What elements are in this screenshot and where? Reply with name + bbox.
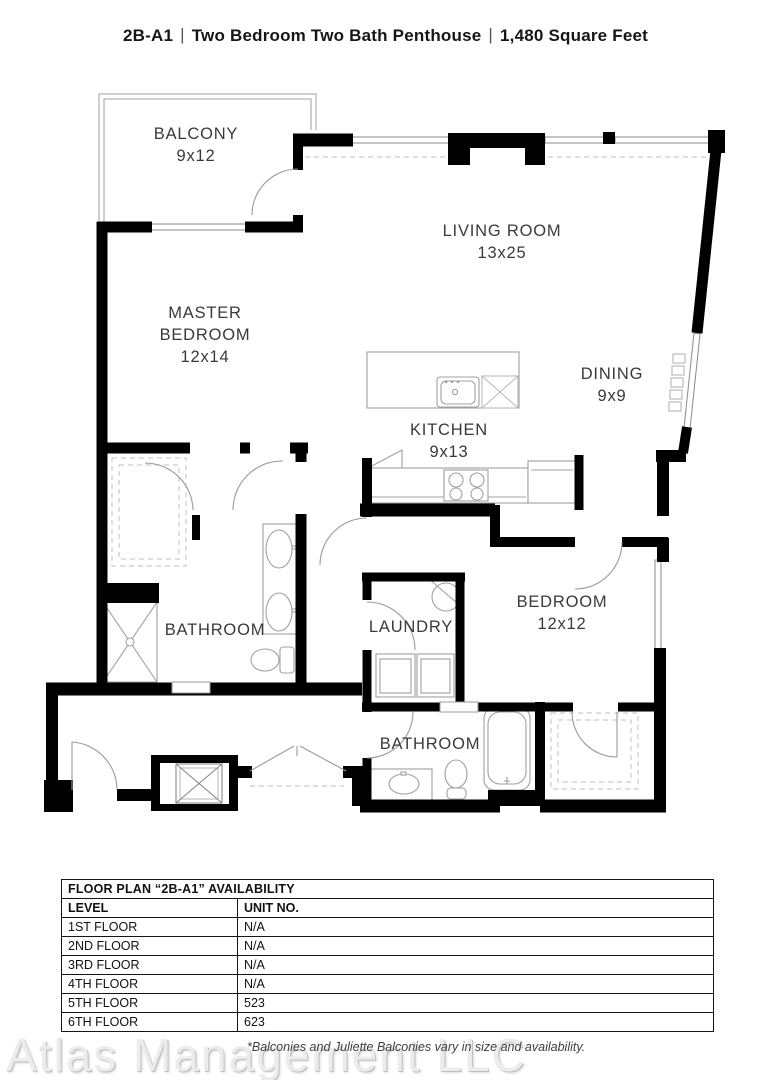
column-notch [470, 148, 525, 166]
master-bathroom-label: BATHROOM [165, 621, 266, 639]
vanity-2 [366, 769, 432, 803]
unit-cell: N/A [238, 975, 714, 994]
master-bath-door-arc [233, 461, 283, 510]
table-row: 5TH FLOOR 523 [62, 994, 714, 1013]
unit-cell: N/A [238, 937, 714, 956]
entry-corner [44, 780, 73, 812]
unit-cell: N/A [238, 918, 714, 937]
table-title-row: FLOOR PLAN “2B-A1” AVAILABILITY [62, 880, 714, 899]
balcony-disclaimer: *Balconies and Juliette Balconies vary i… [247, 1040, 585, 1054]
faucet [292, 609, 296, 612]
refrigerator [528, 461, 576, 503]
dryer [417, 654, 454, 697]
management-watermark: Atlas Management LLC [6, 1028, 527, 1080]
living-room-dims: 13x25 [478, 244, 527, 262]
master-closet-dashed [112, 458, 186, 566]
bedroom-dims: 12x12 [538, 615, 587, 633]
laundry-label: LAUNDRY [369, 618, 453, 636]
table-row: 4TH FLOOR N/A [62, 975, 714, 994]
unit-cell: 523 [238, 994, 714, 1013]
master-bedroom-dims: 12x14 [181, 348, 230, 366]
dining-label: DINING [581, 365, 644, 383]
table-row: 1ST FLOOR N/A [62, 918, 714, 937]
dining-angled-window [684, 333, 700, 429]
bath-threshold [172, 682, 210, 693]
top-wall-pier [603, 132, 615, 144]
master-window [150, 224, 247, 230]
level-cell: 2ND FLOOR [62, 937, 238, 956]
double-vanity [263, 524, 298, 634]
faucet [292, 546, 296, 549]
burner [449, 473, 463, 487]
washer [376, 654, 415, 697]
faucet-dot [451, 381, 453, 383]
bedroom-label: BEDROOM [517, 593, 608, 611]
bath2-threshold [440, 702, 478, 712]
dining-wall-unit [669, 354, 685, 411]
burner [471, 488, 483, 500]
corner-cabinet [368, 450, 402, 468]
kitchen-dims: 9x13 [430, 443, 469, 461]
toilet-master [251, 647, 294, 673]
kitchen-label: KITCHEN [410, 421, 488, 439]
bedroom-closet-door-arc [572, 712, 617, 757]
column-header-level: LEVEL [62, 899, 238, 918]
level-cell: 5TH FLOOR [62, 994, 238, 1013]
living-window-3 [615, 137, 712, 143]
hall-door-arc [320, 518, 367, 565]
bathroom2-label: BATHROOM [380, 735, 481, 753]
faucet-dot [445, 381, 447, 383]
master-bedroom-label-1: MASTER [168, 304, 242, 322]
master-bedroom-label-2: BEDROOM [160, 326, 251, 344]
level-cell: 3RD FLOOR [62, 956, 238, 975]
dining-dims: 9x9 [597, 387, 626, 405]
table-row: 3RD FLOOR N/A [62, 956, 714, 975]
master-closet-dashed-inner [119, 465, 179, 559]
floor-plan: BALCONY 9x12 LIVING ROOM 13x25 MASTER BE… [0, 0, 771, 865]
living-window-2 [545, 137, 605, 143]
availability-table: FLOOR PLAN “2B-A1” AVAILABILITY LEVEL UN… [61, 879, 714, 1032]
level-cell: 1ST FLOOR [62, 918, 238, 937]
bifold-closet-doors [250, 746, 346, 771]
bedroom-door-arc [575, 542, 622, 589]
entry-door-arc [72, 742, 117, 790]
kitchen-counter [366, 450, 576, 503]
faucet [401, 772, 406, 775]
balcony-label: BALCONY [154, 125, 238, 143]
living-window-1 [350, 137, 450, 143]
bath-partition [97, 583, 159, 603]
living-room-label: LIVING ROOM [443, 222, 562, 240]
burner [450, 488, 462, 500]
table-header-row: LEVEL UNIT NO. [62, 899, 714, 918]
column-header-unit: UNIT NO. [238, 899, 714, 918]
balcony-door-arc [252, 169, 298, 215]
bathtub [484, 708, 530, 790]
faucet-dot [457, 381, 459, 383]
burner [470, 473, 484, 487]
table-row: 2ND FLOOR N/A [62, 937, 714, 956]
kitchen-island [367, 352, 519, 408]
balcony-dims: 9x12 [177, 147, 216, 165]
toilet-2 [445, 760, 467, 799]
unit-cell: N/A [238, 956, 714, 975]
level-cell: 4TH FLOOR [62, 975, 238, 994]
dishwasher [482, 376, 518, 408]
floor-plan-page: 2B-A1|Two Bedroom Two Bath Penthouse|1,4… [0, 0, 771, 1080]
elevator-car [176, 764, 222, 803]
table-title: FLOOR PLAN “2B-A1” AVAILABILITY [62, 880, 714, 899]
bedroom-window [655, 560, 661, 650]
shower [103, 602, 157, 682]
